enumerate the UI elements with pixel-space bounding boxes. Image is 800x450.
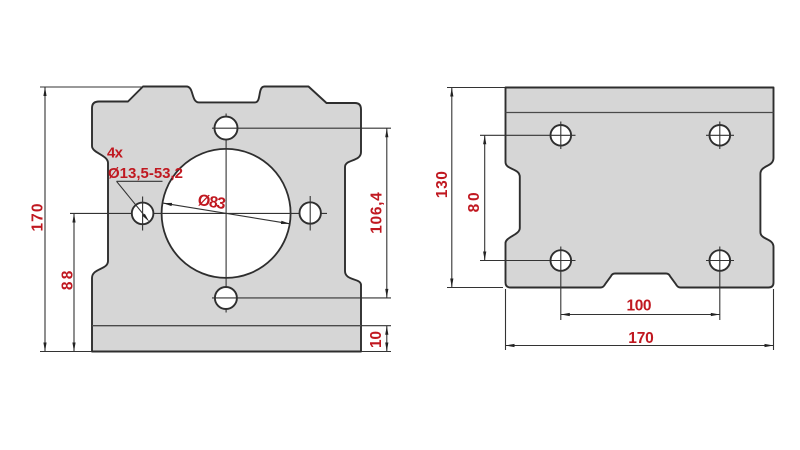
svg-text:4x: 4x (107, 145, 124, 162)
svg-text:130: 130 (434, 171, 451, 198)
svg-text:10: 10 (368, 331, 385, 348)
svg-text:80: 80 (466, 192, 483, 212)
svg-text:88: 88 (60, 270, 77, 290)
svg-text:Ø13,5-53,2: Ø13,5-53,2 (108, 165, 183, 182)
svg-text:100: 100 (627, 298, 652, 315)
svg-text:170: 170 (30, 204, 47, 232)
svg-text:106,4: 106,4 (369, 192, 386, 234)
svg-text:170: 170 (628, 330, 654, 347)
